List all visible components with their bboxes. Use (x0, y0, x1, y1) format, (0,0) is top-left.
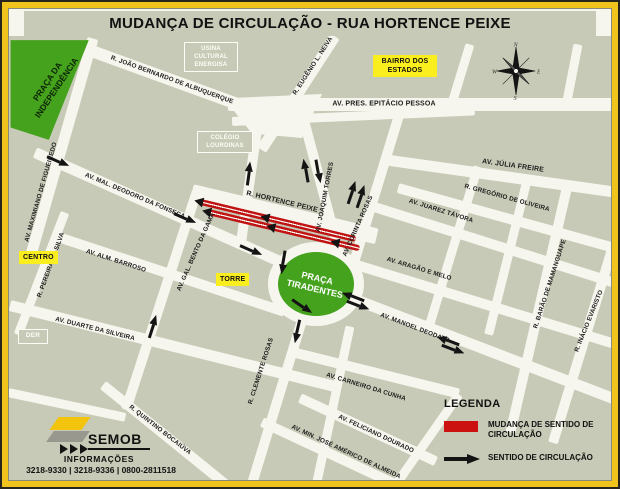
legend-item: MUDANÇA DE SENTIDO DE CIRCULAÇÃO (444, 420, 612, 441)
map-poster: PRAÇA TIRADENTES PRAÇA DA INDEPENDÊNCIA … (0, 0, 620, 489)
legend-item: SENTIDO DE CIRCULAÇÃO (444, 453, 612, 464)
semob-brand: SEMOB (88, 431, 150, 450)
svg-text:W: W (492, 69, 498, 75)
page-title: MUDANÇA DE CIRCULAÇÃO - RUA HORTENCE PEI… (109, 15, 511, 32)
red-bar-swatch-icon (444, 421, 478, 432)
legend: LEGENDA MUDANÇA DE SENTIDO DE CIRCULAÇÃO… (444, 398, 612, 476)
place-label-centro: CENTRO (19, 251, 58, 264)
svg-text:N: N (513, 42, 519, 48)
footer-phones: 3218-9330 | 3218-9336 | 0800-2811518 (10, 465, 192, 475)
semob-logo-icon (44, 417, 92, 455)
svg-text:E: E (536, 69, 540, 75)
compass-rose-icon: N S W E (492, 42, 540, 100)
legend-title: LEGENDA (444, 398, 612, 410)
place-label-der: DER (18, 329, 48, 344)
footer-info-label: INFORMAÇÕES (14, 454, 184, 464)
svg-text:S: S (514, 96, 517, 100)
legend-item-label: MUDANÇA DE SENTIDO DE CIRCULAÇÃO (488, 420, 600, 441)
place-label-colegio: COLÉGIO LOURDINAS (197, 131, 253, 153)
place-label-bairro-dos-estados: BAIRRO DOS ESTADOS (373, 55, 437, 77)
black-arrow-icon (444, 454, 480, 464)
place-label-usina: USINA CULTURAL ENERGISA (184, 42, 238, 72)
road-label: AV. PRES. EPITÁCIO PESSOA (332, 101, 435, 108)
title-bar: MUDANÇA DE CIRCULAÇÃO - RUA HORTENCE PEI… (24, 11, 596, 36)
legend-item-label: SENTIDO DE CIRCULAÇÃO (488, 453, 593, 463)
place-label-torre: TORRE (216, 273, 249, 286)
praca-tiradentes: PRAÇA TIRADENTES (278, 252, 354, 316)
